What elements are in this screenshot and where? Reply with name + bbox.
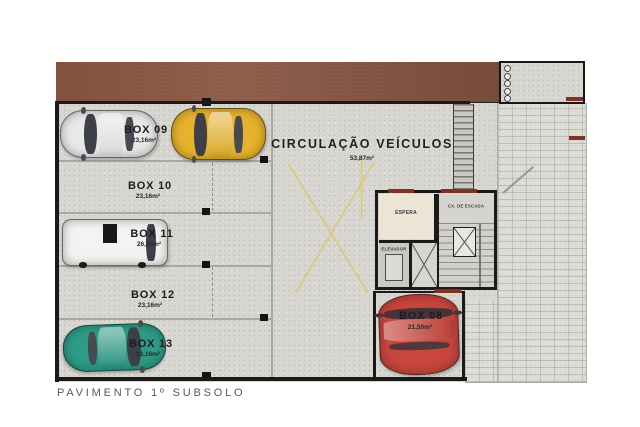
mirror-icon	[139, 366, 144, 372]
cross-mark-icon	[454, 228, 475, 256]
paved-area-right	[497, 103, 587, 383]
column-marker	[260, 314, 268, 321]
circulation-label: CIRCULAÇÃO VEÍCULOS	[271, 137, 453, 151]
mirror-icon	[81, 107, 86, 113]
cylinder-icon	[504, 73, 511, 80]
rear-window-icon	[88, 331, 98, 365]
box-boundary-dashed	[212, 267, 214, 317]
stair-box-label: CX. DE ESCADA	[448, 204, 484, 209]
cylinder-icon	[504, 95, 511, 102]
elevator-label: ELEVADOR	[381, 247, 406, 252]
elevator-cab	[385, 254, 403, 281]
box-10-area: 23,16m²	[136, 193, 160, 200]
cross-mark-icon	[411, 242, 437, 287]
mirror-icon	[192, 105, 197, 112]
floor-plan: ESPERA CX. DE ESCADA ELEVADOR CIRCUL	[0, 0, 640, 427]
car-yellow	[171, 108, 266, 160]
box-11-area: 26,55m²	[137, 241, 161, 248]
column-marker	[260, 156, 268, 163]
vehicle-ramp	[453, 104, 474, 190]
terrain-strip	[56, 62, 499, 103]
box-08-label: BOX 08	[399, 310, 443, 322]
rear-window-icon	[234, 116, 242, 153]
car-red	[378, 293, 461, 377]
mirror-icon	[81, 154, 86, 160]
box-09-area: 23,16m²	[132, 137, 156, 144]
box-11-label: BOX 11	[130, 228, 173, 240]
paved-area-bottom	[465, 300, 498, 383]
core-wall	[437, 194, 439, 287]
mirror-icon	[192, 156, 197, 163]
box-09-label: BOX 09	[124, 124, 168, 136]
top-wall	[56, 101, 470, 104]
row-separator	[59, 212, 272, 214]
car-roof	[208, 112, 233, 157]
column-marker	[202, 208, 210, 215]
core-wall	[379, 240, 437, 243]
windshield-icon	[84, 114, 97, 154]
waiting-room-label: ESPERA	[395, 210, 417, 216]
left-wall	[55, 101, 59, 382]
circulation-area: 53,87m²	[350, 155, 374, 162]
box-10-label: BOX 10	[128, 180, 172, 192]
wheel-icon	[138, 262, 146, 268]
wheel-icon	[79, 262, 87, 268]
box-08-area: 21,50m²	[408, 324, 432, 331]
cylinder-icon	[504, 65, 511, 72]
box-boundary-dashed	[212, 163, 214, 211]
box-13-label: BOX 13	[129, 338, 173, 350]
box-12-area: 23,16m²	[138, 302, 162, 309]
core-wall	[409, 242, 412, 287]
page-title: PAVIMENTO 1º SUBSOLO	[57, 387, 245, 399]
utility-door-lintel	[566, 97, 583, 101]
car-roof	[98, 113, 124, 154]
cylinder-icon	[504, 88, 511, 95]
paving-door-lintel	[569, 136, 585, 140]
rear-window-icon	[390, 341, 450, 351]
windshield-icon	[194, 113, 207, 156]
box-13-area: 23,16m²	[136, 351, 160, 358]
guide-line	[361, 159, 363, 219]
stair-landing	[453, 227, 476, 257]
duct-shaft	[411, 242, 437, 287]
cargo-hatch	[103, 224, 118, 243]
stairs-divider	[479, 223, 481, 287]
column-marker	[202, 261, 210, 268]
box-08-lintel	[434, 289, 461, 293]
mirror-icon	[138, 320, 143, 326]
row-separator	[59, 318, 272, 320]
row-separator	[59, 160, 272, 162]
box-12-label: BOX 12	[131, 289, 175, 301]
bottom-wall	[55, 377, 467, 381]
stair-box-room	[437, 194, 494, 223]
door-lintel	[441, 189, 457, 193]
door-lintel	[388, 189, 414, 193]
waiting-room	[379, 194, 434, 239]
car-roof	[98, 327, 127, 368]
cylinder-icon	[504, 80, 511, 87]
